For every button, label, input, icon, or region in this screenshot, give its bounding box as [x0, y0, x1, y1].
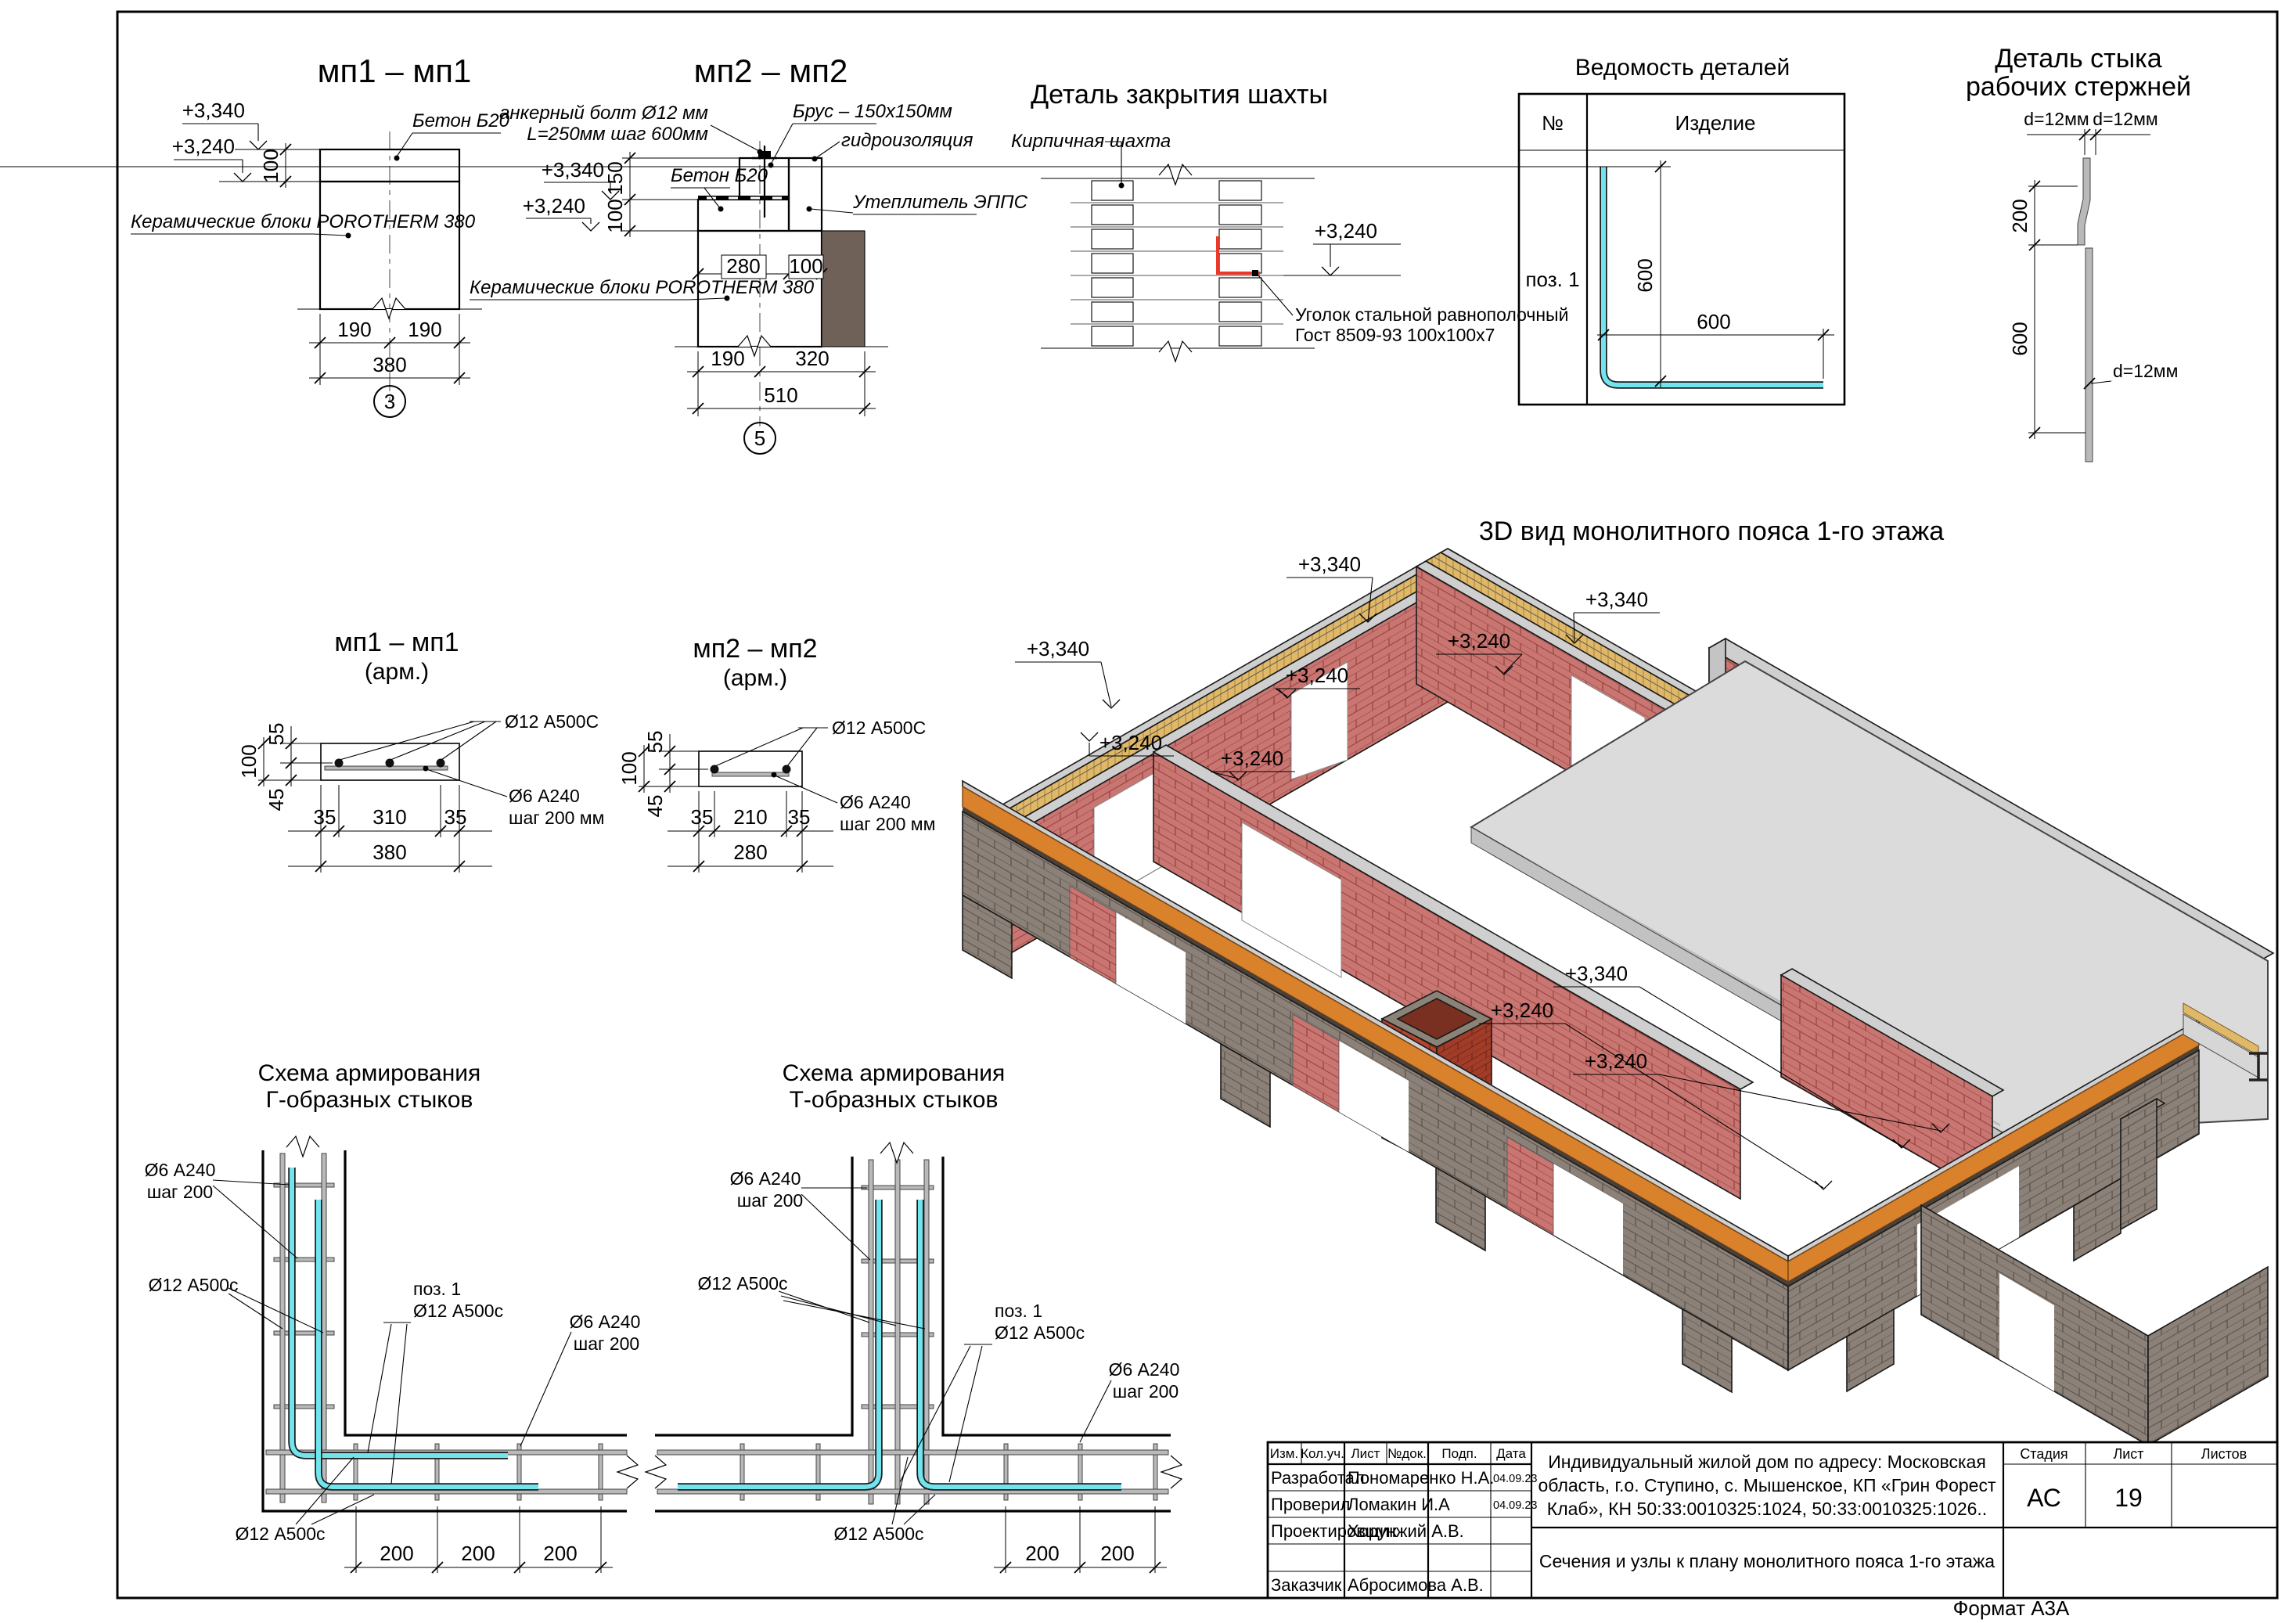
schT-tie-right-1: Ø6 А240 [1109, 1359, 1180, 1380]
mp2-title: мп2 – мп2 [694, 52, 848, 89]
rod-lower [2085, 248, 2093, 462]
tb-doc-title: Сечения и узлы к плану монолитного пояса… [1539, 1551, 1995, 1571]
schL-bar-left: Ø12 А500с [148, 1275, 238, 1295]
mp2a-tie-label-1: Ø6 А240 [840, 792, 911, 812]
schT-pos-1: поз. 1 [995, 1301, 1042, 1321]
rod-upper [2078, 158, 2090, 245]
schT-bar-bottom: Ø12 А500с [833, 1524, 923, 1544]
section-mp1: мп1 – мп1 Бетон Б20 Керамические блоки P… [131, 52, 510, 417]
3d-level-8: +3,240 [1491, 999, 1553, 1022]
parts-col-item: Изделие [1675, 111, 1756, 135]
3d-level-4: +3,240 [1099, 731, 1162, 754]
mp1-title: мп1 – мп1 [318, 52, 472, 89]
mp2a-dim-210: 210 [733, 805, 767, 829]
tb-row1-role: Проверил [1271, 1495, 1350, 1514]
parts-dim-h: 600 [1697, 310, 1730, 333]
rods-d-bottom: d=12мм [2113, 361, 2178, 381]
mp2-dim-100: 100 [603, 199, 627, 232]
section-3d-view: 3D вид монолитного пояса 1-го этажа [963, 516, 2273, 1445]
3d-level-1: +3,340 [1585, 588, 1648, 611]
mp1-concrete-label: Бетон Б20 [412, 110, 510, 131]
tb-h-list: Лист [1351, 1446, 1380, 1461]
schL-title-1: Схема армирования [258, 1060, 481, 1086]
mp2-insulation-label: Утеплитель ЭППС [852, 192, 1028, 213]
mp1-dim-100: 100 [259, 149, 283, 182]
mp1-dim-190l: 190 [337, 318, 371, 341]
3d-level-5: +3,240 [1221, 747, 1283, 770]
tb-row1-date: 04.09.23 [1493, 1499, 1537, 1512]
mp2-dim-280: 280 [726, 254, 760, 278]
drawing-sheet: мп1 – мп1 Бетон Б20 Керамические блоки P… [0, 0, 2296, 1623]
rods-dim-200: 200 [2008, 199, 2031, 232]
mp1a-dim-55: 55 [265, 723, 288, 746]
rods-title-1: Деталь стыка [1995, 44, 2162, 74]
mp1-level-bot: +3,240 [172, 135, 235, 158]
schT-tie-top-1: Ø6 А240 [730, 1168, 801, 1189]
schL-dim-2: 200 [461, 1542, 495, 1565]
schL-dim-1: 200 [380, 1542, 413, 1565]
mp1-dim-190r: 190 [408, 318, 441, 341]
mp2a-dim-45: 45 [643, 795, 667, 818]
schT-bar-left: Ø12 А500с [697, 1273, 787, 1294]
shaft-angle-label-2: Гост 8509-93 100х100х7 [1295, 325, 1495, 345]
mp2a-title: мп2 – мп2 [693, 634, 817, 664]
tb-project-line-3: Клаб», КН 50:33:0010325:1024, 50:33:0010… [1547, 1499, 1987, 1519]
mp1-marker: 3 [384, 390, 395, 413]
mp1a-dim-35l: 35 [314, 805, 336, 829]
mp2a-dim-35r: 35 [788, 805, 811, 829]
mp2-dim-320: 320 [795, 347, 829, 370]
mp1a-dim-380: 380 [372, 840, 406, 864]
schT-dim-1: 200 [1025, 1542, 1059, 1565]
tb-h-data: Дата [1496, 1446, 1526, 1461]
mp2a-dim-100: 100 [617, 751, 641, 785]
tb-h-ndok: №док. [1387, 1446, 1427, 1461]
section-shaft: Деталь закрытия шахты Кирпичная шахта +3… [1011, 80, 1568, 362]
mp1a-dim-45: 45 [265, 789, 288, 811]
schT-title-2: Т-образных стыков [790, 1087, 999, 1113]
tb-project-line-1: Индивидуальный жилой дом по адресу: Моск… [1548, 1452, 1986, 1472]
schT-title-1: Схема армирования [783, 1060, 1006, 1086]
mp1a-dim-100: 100 [237, 744, 261, 778]
tb-row0-name: Пономаренко Н.А. [1348, 1468, 1494, 1488]
tb-stage-label: Стадия [2020, 1446, 2067, 1462]
schT-tie-top-2: шаг 200 [737, 1190, 803, 1211]
mp2-blocks-label: Керамические блоки POROTHERM 380 [470, 277, 815, 298]
schL-title-2: Г-образных стыков [266, 1087, 473, 1113]
schL-tie-top-2: шаг 200 [147, 1182, 213, 1202]
parts-dim-v: 600 [1633, 258, 1657, 292]
section-mp2-arm: мп2 – мп2 (арм.) Ø12 А500С Ø6 А240 шаг 2… [617, 634, 935, 873]
mp2-anchor-label-2: L=250мм шаг 600мм [527, 124, 708, 145]
mp2-level-top: +3,340 [542, 158, 604, 182]
schL-bar-bottom: Ø12 А500с [235, 1524, 325, 1544]
parts-col-no: № [1542, 111, 1564, 135]
rods-d-right: d=12мм [2093, 109, 2157, 129]
mp1a-dim-310: 310 [372, 805, 406, 829]
3d-title: 3D вид монолитного пояса 1-го этажа [1479, 516, 1944, 546]
tb-sheet-label: Лист [2113, 1446, 2143, 1462]
shaft-title: Деталь закрытия шахты [1031, 80, 1328, 110]
section-mp2: мп2 – мп2 анкерный болт Ø12 мм L=250мм ш… [470, 52, 1028, 454]
tb-h-podp: Подп. [1441, 1446, 1477, 1461]
mp1-level-top: +3,340 [182, 99, 245, 122]
parts-row-pos: поз. 1 [1525, 268, 1579, 291]
schL-tie-right-1: Ø6 А240 [570, 1312, 641, 1332]
mp2-concrete-label: Бетон Б20 [671, 165, 768, 186]
mp2-waterproofing-label: гидроизоляция [841, 130, 973, 151]
3d-level-6: +3,240 [1286, 664, 1348, 687]
format-label: Формат А3А [1953, 1596, 2070, 1620]
tb-project-line-2: область, г.о. Ступино, с. Мышенское, КП … [1538, 1475, 1996, 1495]
mp2-dim-510: 510 [764, 383, 797, 407]
schT-pos-2: Ø12 А500с [995, 1323, 1085, 1343]
section-rods: Деталь стыка рабочих стержней d=12мм d=1… [1966, 44, 2191, 462]
tb-h-koluch: Кол.уч. [1301, 1446, 1344, 1461]
section-mp1-arm: мп1 – мп1 (арм.) Ø12 А500С Ø6 А240 шаг 2… [237, 628, 604, 873]
3d-level-2: +3,240 [1448, 629, 1510, 653]
mp1a-dim-35r: 35 [444, 805, 467, 829]
shaft-angle-label-1: Уголок стальной равнополочный [1295, 304, 1568, 325]
schT-tie-right-2: шаг 200 [1113, 1381, 1179, 1402]
mp2a-dim-55: 55 [643, 731, 667, 754]
mp2-dim-100b: 100 [789, 254, 822, 278]
mp2-dim-190: 190 [711, 347, 744, 370]
mp2-marker: 5 [754, 426, 765, 450]
mp2-level-bot: +3,240 [523, 194, 585, 218]
schL-tie-right-2: шаг 200 [574, 1333, 639, 1354]
parts-title: Ведомость деталей [1575, 55, 1790, 81]
mp1-dim-380: 380 [372, 353, 406, 376]
tb-stage-value: АС [2027, 1484, 2061, 1512]
mp1a-tie-label-1: Ø6 А240 [509, 786, 580, 806]
3d-level-9: +3,240 [1585, 1049, 1647, 1073]
3d-level-0: +3,340 [1298, 552, 1361, 576]
3d-level-7: +3,340 [1565, 962, 1628, 985]
tb-row4-role: Заказчик [1271, 1575, 1342, 1595]
tb-row4-name: Абросимова А.В. [1348, 1575, 1484, 1595]
tb-row1-name: Ломакин И.А [1348, 1495, 1450, 1514]
mp2a-dim-35l: 35 [691, 805, 714, 829]
tb-sheet-value: 19 [2114, 1484, 2143, 1512]
mp2-beam-label: Брус – 150х150мм [793, 101, 952, 122]
mp2a-dim-280: 280 [733, 840, 767, 864]
mp2a-sub: (арм.) [723, 665, 787, 691]
mp2-anchor-label-1: анкерный болт Ø12 мм [499, 103, 708, 124]
tb-h-izm: Изм. [1270, 1446, 1298, 1461]
shaft-level: +3,240 [1315, 219, 1377, 243]
mp2a-tie-label-2: шаг 200 мм [840, 814, 935, 834]
section-scheme-T: Схема армирования Т-образных стыков Ø6 А… [646, 1060, 1182, 1573]
3d-level-3: +3,340 [1027, 637, 1089, 660]
tb-row0-date: 04.09.23 [1493, 1473, 1537, 1485]
rods-dim-600: 600 [2008, 322, 2031, 355]
schL-dim-3: 200 [543, 1542, 577, 1565]
schL-tie-top-1: Ø6 А240 [145, 1160, 216, 1180]
tb-row2-name: Хорунжий А.В. [1348, 1521, 1464, 1541]
title-block: Изм. Кол.уч. Лист №док. Подп. Дата Разра… [1268, 1442, 2277, 1598]
schT-dim-2: 200 [1100, 1542, 1134, 1565]
rods-title-2: рабочих стержней [1966, 72, 2191, 102]
mp2a-bar-label: Ø12 А500С [832, 718, 926, 738]
mp1-blocks-label: Керамические блоки POROTHERM 380 [131, 211, 476, 232]
mp1a-bar-label: Ø12 А500С [505, 711, 599, 732]
rods-d-left: d=12мм [2024, 109, 2089, 129]
mp1a-sub: (арм.) [365, 659, 429, 685]
mp1a-title: мп1 – мп1 [334, 628, 459, 657]
shaft-wall-label: Кирпичная шахта [1011, 131, 1171, 152]
schL-pos-1: поз. 1 [413, 1279, 461, 1299]
tb-sheets-label: Листов [2201, 1446, 2247, 1462]
steel-angle-highlight [1218, 236, 1260, 273]
schL-pos-2: Ø12 А500с [413, 1301, 503, 1321]
mp1a-tie-label-2: шаг 200 мм [509, 808, 604, 828]
section-scheme-L: Схема армирования Г-образных стыков Ø6 А… [145, 1060, 641, 1573]
